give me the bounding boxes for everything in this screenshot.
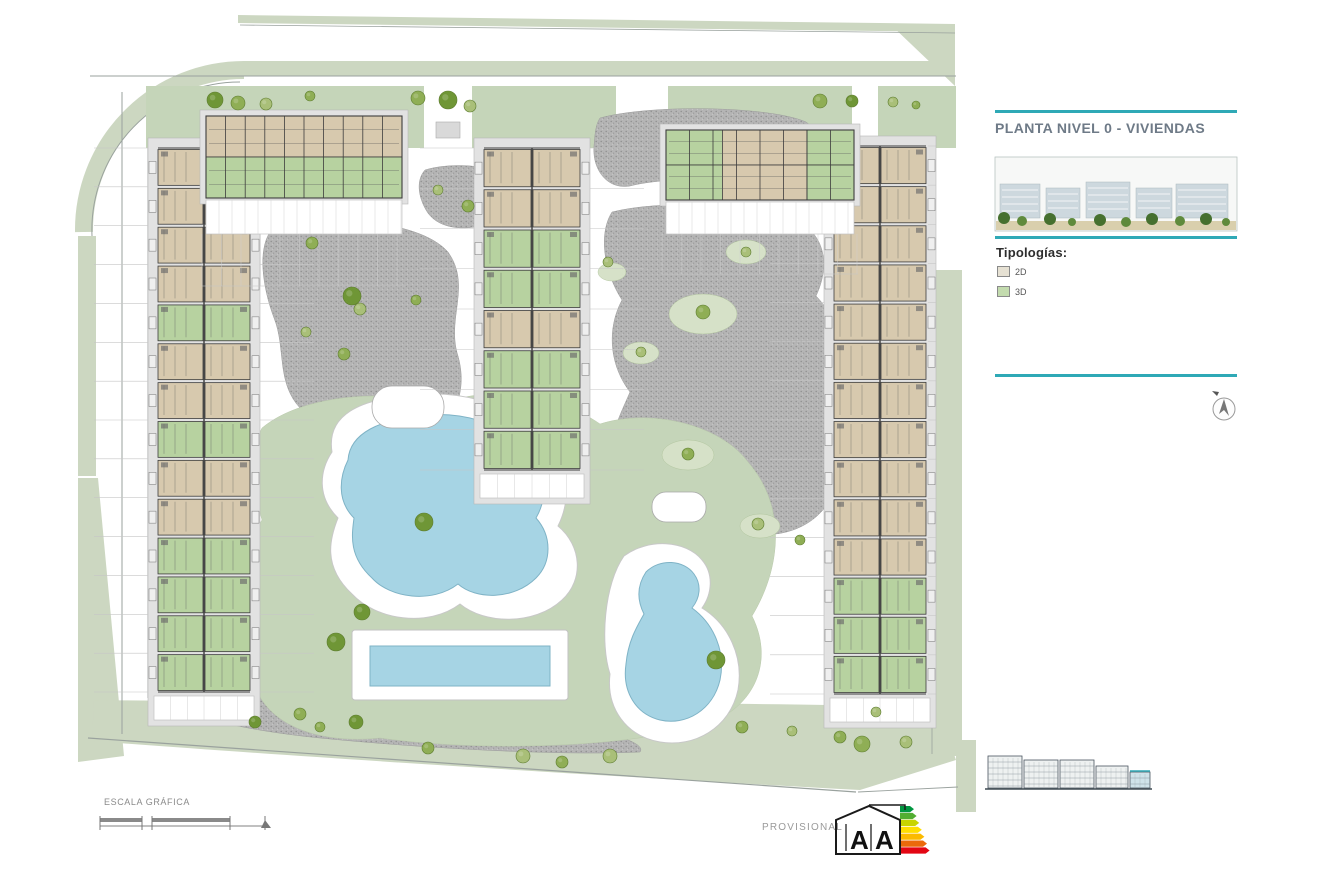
energy-rating-icon: AA bbox=[836, 805, 930, 855]
provisional-label: PROVISIONAL bbox=[762, 822, 843, 833]
legend-item-3d: 3D bbox=[997, 286, 1027, 297]
render-thumbnail bbox=[995, 157, 1237, 231]
panel-rule-bottom bbox=[995, 374, 1237, 377]
compass-icon bbox=[1212, 391, 1235, 420]
elevation-drawing bbox=[985, 756, 1152, 789]
scale-bar-label: ESCALA GRÁFICA bbox=[104, 797, 190, 807]
legend-label-2d: 2D bbox=[1015, 267, 1027, 277]
panel-rule-top bbox=[995, 110, 1237, 113]
sheet-title: PLANTA NIVEL 0 - VIVIENDAS bbox=[995, 120, 1205, 136]
plan-sheet: AA PLANTA NIVEL 0 - VIVIENDAS Tipologías… bbox=[0, 0, 1320, 895]
svg-text:A: A bbox=[850, 825, 869, 855]
legend-swatch-3d bbox=[997, 286, 1010, 297]
scale-bar bbox=[100, 816, 271, 830]
legend-item-2d: 2D bbox=[997, 266, 1027, 277]
legend-label-3d: 3D bbox=[1015, 287, 1027, 297]
legend-title: Tipologías: bbox=[996, 245, 1067, 260]
panel-rule-mid bbox=[995, 236, 1237, 239]
svg-text:A: A bbox=[875, 825, 894, 855]
legend-swatch-2d bbox=[997, 266, 1010, 277]
